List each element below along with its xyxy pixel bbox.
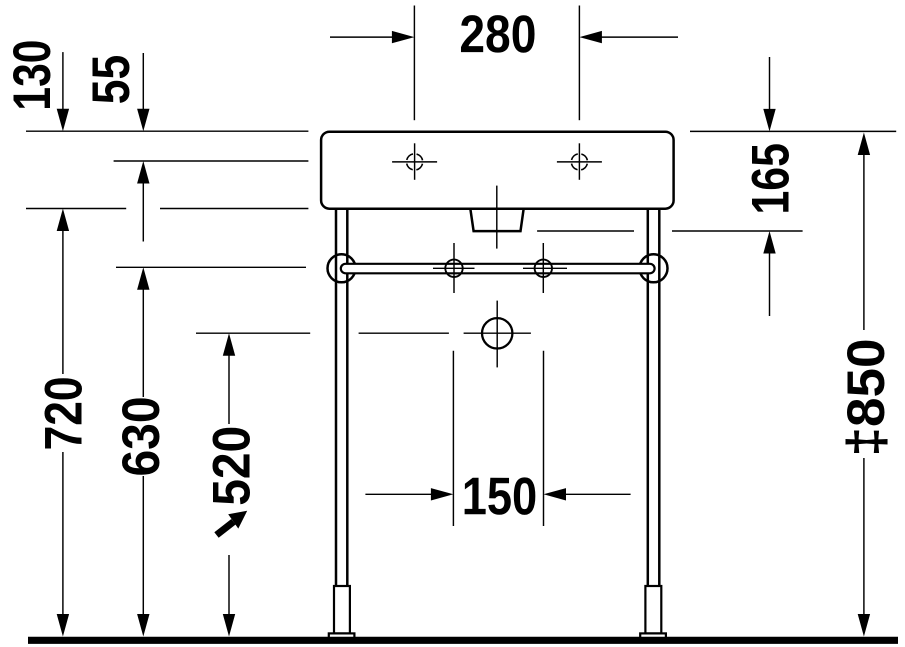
svg-text:520: 520 <box>202 426 261 506</box>
svg-text:‡850: ‡850 <box>837 339 896 457</box>
svg-text:130: 130 <box>3 40 62 111</box>
svg-text:150: 150 <box>462 467 538 526</box>
svg-text:165: 165 <box>742 143 801 215</box>
svg-text:720: 720 <box>34 376 93 450</box>
svg-text:280: 280 <box>459 5 536 64</box>
svg-text:630: 630 <box>112 397 171 477</box>
svg-text:55: 55 <box>82 55 141 105</box>
